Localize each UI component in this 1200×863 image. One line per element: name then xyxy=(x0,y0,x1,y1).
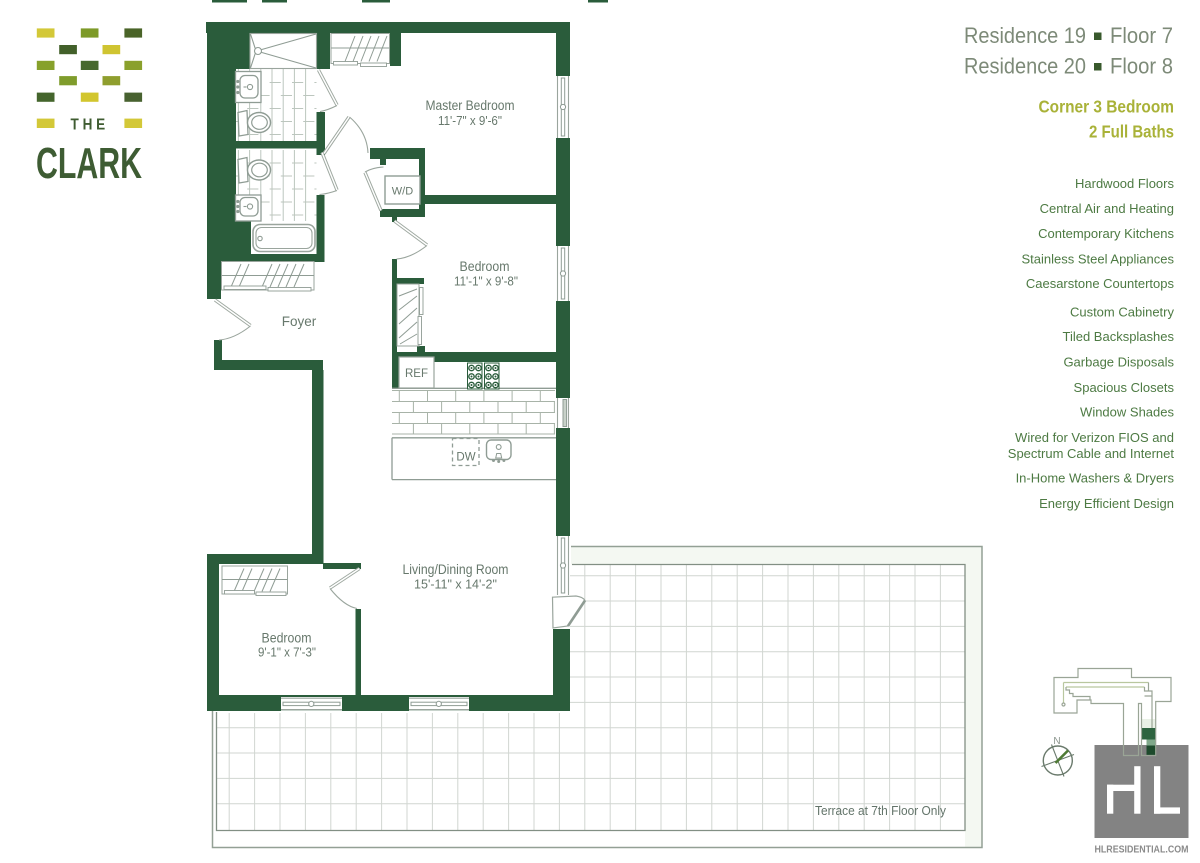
svg-text:N: N xyxy=(1053,736,1060,747)
svg-text:Terrace at 7th Floor Only: Terrace at 7th Floor Only xyxy=(815,804,947,818)
svg-text:Master Bedroom: Master Bedroom xyxy=(426,98,515,113)
svg-text:Contemporary Kitchens: Contemporary Kitchens xyxy=(1038,226,1174,241)
svg-text:W/D: W/D xyxy=(392,186,413,198)
svg-text:Energy Efficient Design: Energy Efficient Design xyxy=(1039,496,1174,511)
svg-text:Bedroom: Bedroom xyxy=(262,631,312,646)
svg-text:REF: REF xyxy=(405,368,428,380)
svg-text:Caesarstone Countertops: Caesarstone Countertops xyxy=(1026,276,1175,291)
svg-text:11'-7" x 9'-6": 11'-7" x 9'-6" xyxy=(438,114,502,128)
svg-text:DW: DW xyxy=(456,452,475,464)
svg-text:CLARK: CLARK xyxy=(36,139,142,188)
svg-text:Garbage Disposals: Garbage Disposals xyxy=(1063,355,1174,370)
svg-text:Bedroom: Bedroom xyxy=(460,259,510,274)
svg-text:9'-1" x 7'-3": 9'-1" x 7'-3" xyxy=(258,646,316,660)
svg-text:Hardwood Floors: Hardwood Floors xyxy=(1075,176,1174,191)
svg-text:Corner 3 Bedroom: Corner 3 Bedroom xyxy=(1039,97,1175,117)
svg-text:Tiled Backsplashes: Tiled Backsplashes xyxy=(1062,329,1174,344)
svg-text:Stainless Steel Appliances: Stainless Steel Appliances xyxy=(1022,251,1175,266)
svg-text:Spacious Closets: Spacious Closets xyxy=(1074,380,1175,395)
svg-text:Custom Cabinetry: Custom Cabinetry xyxy=(1070,305,1175,320)
svg-text:11'-1" x 9'-8": 11'-1" x 9'-8" xyxy=(454,275,518,289)
svg-text:Residence 19: Residence 19 xyxy=(964,23,1086,48)
svg-text:Floor 8: Floor 8 xyxy=(1110,54,1173,79)
svg-text:In-Home Washers & Dryers: In-Home Washers & Dryers xyxy=(1016,471,1175,486)
svg-text:Window Shades: Window Shades xyxy=(1080,405,1174,420)
svg-text:Wired for Verizon FIOS and: Wired for Verizon FIOS and xyxy=(1015,430,1174,445)
svg-text:Floor 7: Floor 7 xyxy=(1110,23,1173,48)
svg-text:Foyer: Foyer xyxy=(282,314,317,329)
svg-text:Living/Dining Room: Living/Dining Room xyxy=(403,562,509,577)
svg-text:Residence 20: Residence 20 xyxy=(964,54,1086,79)
svg-text:HLRESIDENTIAL.COM: HLRESIDENTIAL.COM xyxy=(1095,844,1189,856)
svg-text:THE: THE xyxy=(71,117,110,134)
svg-text:Central Air and Heating: Central Air and Heating xyxy=(1040,201,1174,216)
svg-text:15'-11" x 14'-2": 15'-11" x 14'-2" xyxy=(414,578,497,592)
svg-text:2 Full Baths: 2 Full Baths xyxy=(1089,122,1174,142)
svg-text:Spectrum Cable and Internet: Spectrum Cable and Internet xyxy=(1008,446,1175,461)
